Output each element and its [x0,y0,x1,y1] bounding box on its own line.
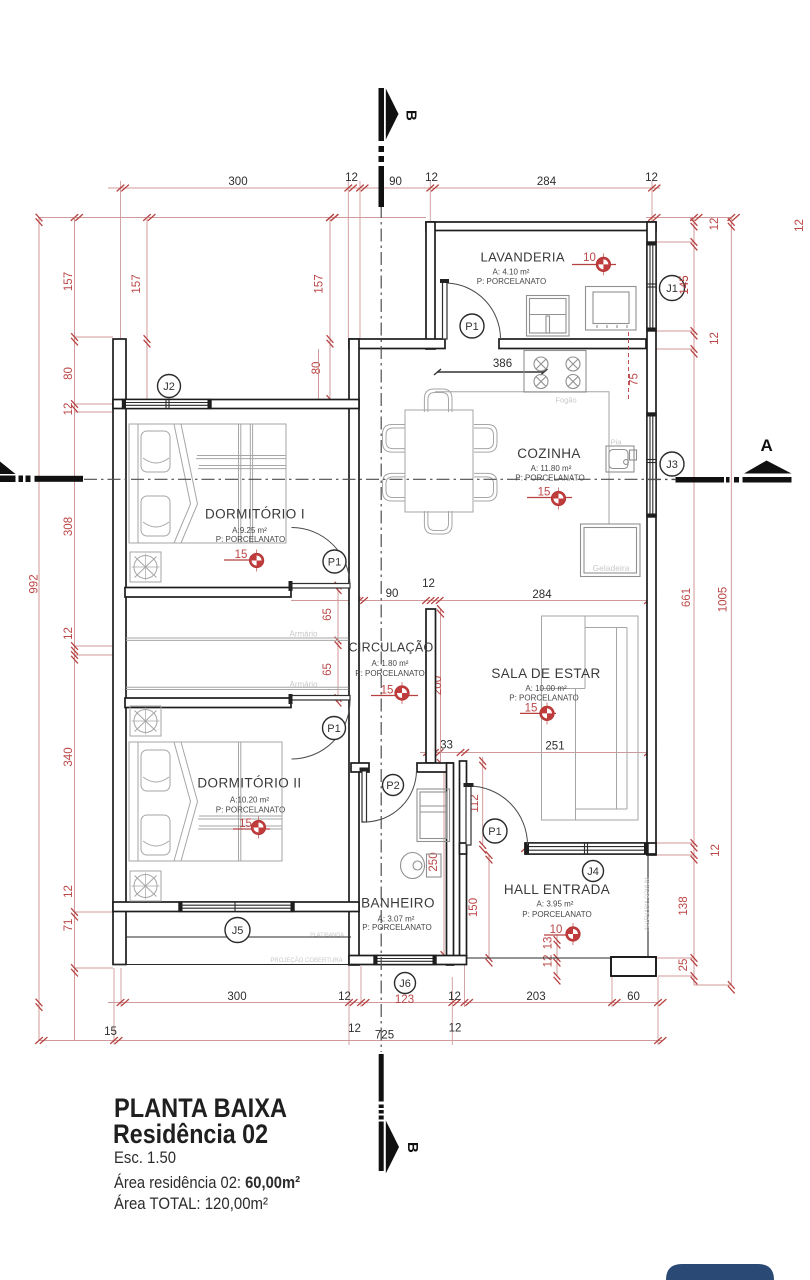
svg-text:12: 12 [543,955,555,968]
svg-text:386: 386 [493,358,512,370]
svg-text:B: B [403,110,420,121]
svg-text:150: 150 [468,898,480,917]
svg-text:A: 11.80 m²: A: 11.80 m² [531,464,572,473]
svg-text:10: 10 [550,924,563,936]
svg-text:P1: P1 [488,826,501,838]
svg-text:A: A [761,436,773,455]
svg-text:P: PORCELANATO: P: PORCELANATO [509,694,579,703]
svg-text:15: 15 [239,818,252,830]
svg-text:A:9.25 m²: A:9.25 m² [232,526,267,535]
svg-text:P: PORCELANATO: P: PORCELANATO [216,806,286,815]
svg-text:251: 251 [545,741,564,753]
svg-text:25: 25 [678,959,690,972]
svg-text:P2: P2 [386,780,399,792]
svg-text:284: 284 [537,176,557,188]
svg-text:PROJEÇÃO COBERTURA: PROJEÇÃO COBERTURA [270,957,342,964]
svg-text:992: 992 [29,574,41,593]
svg-text:LAVANDERIA: LAVANDERIA [480,250,564,265]
svg-text:300: 300 [228,176,247,188]
svg-text:308: 308 [63,517,75,536]
svg-text:Esc. 1.50: Esc. 1.50 [114,1148,176,1167]
svg-text:CIRCULAÇÃO: CIRCULAÇÃO [349,641,434,655]
svg-text:12: 12 [63,627,75,640]
svg-text:HALL ENTRADA: HALL ENTRADA [504,882,610,897]
svg-text:12: 12 [709,332,721,345]
svg-text:12: 12 [794,219,806,232]
svg-text:284: 284 [532,589,552,601]
svg-text:12: 12 [425,172,438,184]
svg-text:12: 12 [709,218,721,231]
svg-text:90: 90 [389,176,402,188]
svg-text:P: PORCELANATO: P: PORCELANATO [477,277,547,286]
svg-text:661: 661 [681,588,693,607]
svg-text:Geladeira: Geladeira [593,563,630,573]
svg-text:DORMITÓRIO II: DORMITÓRIO II [197,776,301,791]
svg-text:Área TOTAL: 120,00m²: Área TOTAL: 120,00m² [114,1194,268,1213]
svg-text:Armário: Armário [289,680,318,689]
svg-text:DORMITÓRIO I: DORMITÓRIO I [205,507,305,522]
svg-text:ALVENARIA COMUM: ALVENARIA COMUM [645,877,651,930]
svg-text:J1: J1 [666,283,678,295]
svg-text:J2: J2 [163,381,175,393]
svg-text:15: 15 [104,1026,117,1038]
svg-text:P: PORCELANATO: P: PORCELANATO [515,474,585,483]
svg-text:1005: 1005 [718,587,730,613]
svg-text:203: 203 [526,991,545,1003]
svg-text:12: 12 [63,885,75,898]
svg-text:J4: J4 [587,866,599,878]
svg-text:157: 157 [314,274,326,293]
svg-text:Residência 02: Residência 02 [113,1119,268,1149]
svg-text:12: 12 [645,172,658,184]
svg-text:60: 60 [627,991,640,1003]
svg-text:SALA DE ESTAR: SALA DE ESTAR [491,666,600,681]
svg-text:Área residência 02: 60,00m²: Área residência 02: 60,00m² [114,1173,300,1192]
svg-text:71: 71 [63,919,75,932]
svg-text:A: 3.07 m²: A: 3.07 m² [378,914,415,923]
svg-text:15: 15 [381,685,394,697]
svg-text:138: 138 [678,896,690,915]
svg-text:12: 12 [63,403,75,416]
svg-text:J3: J3 [666,459,678,471]
svg-text:15: 15 [525,703,538,715]
svg-text:BANHEIRO: BANHEIRO [361,896,435,911]
svg-text:725: 725 [375,1030,394,1042]
svg-text:P1: P1 [465,321,478,333]
svg-text:300: 300 [227,991,246,1003]
svg-text:P1: P1 [328,557,341,569]
svg-text:12: 12 [449,1023,462,1035]
svg-text:12: 12 [348,1023,361,1035]
svg-text:340: 340 [63,747,75,766]
svg-text:90: 90 [386,588,399,600]
svg-text:65: 65 [322,663,334,676]
svg-text:B: B [404,1142,421,1153]
svg-text:12: 12 [448,991,461,1003]
svg-text:12: 12 [345,172,358,184]
svg-text:13: 13 [543,937,555,950]
svg-text:P: PORCELANATO: P: PORCELANATO [362,923,432,932]
svg-text:P: PORCELANATO: P: PORCELANATO [216,535,286,544]
svg-text:P: PORCELANATO: P: PORCELANATO [355,669,425,678]
svg-text:145: 145 [679,275,691,294]
svg-text:J6: J6 [399,978,411,990]
svg-text:P1: P1 [327,723,340,735]
svg-text:65: 65 [322,608,334,621]
svg-text:A: 10.00 m²: A: 10.00 m² [525,684,567,693]
svg-text:PLATIBANDA: PLATIBANDA [310,933,344,939]
svg-text:15: 15 [538,487,551,499]
svg-text:157: 157 [63,272,75,291]
svg-text:COZINHA: COZINHA [517,446,581,461]
svg-text:80: 80 [311,362,323,375]
svg-text:123: 123 [395,994,414,1006]
svg-text:A:10.20 m²: A:10.20 m² [230,796,269,805]
svg-text:J5: J5 [232,925,244,937]
svg-text:Armário: Armário [289,630,318,639]
svg-text:A: 3.95 m²: A: 3.95 m² [537,900,574,909]
svg-text:A: 4.10 m²: A: 4.10 m² [493,268,530,277]
svg-text:80: 80 [63,367,75,380]
svg-text:10: 10 [583,252,596,264]
svg-text:157: 157 [131,274,143,293]
svg-text:12: 12 [422,578,435,590]
svg-text:75: 75 [629,373,641,386]
svg-text:12: 12 [338,991,351,1003]
svg-text:33: 33 [440,740,453,752]
svg-text:A: 1.80 m²: A: 1.80 m² [372,659,409,668]
svg-text:Pia: Pia [611,438,623,447]
svg-text:250: 250 [428,852,440,871]
svg-text:15: 15 [235,549,248,561]
svg-text:12: 12 [710,844,722,857]
svg-text:Fogão: Fogão [555,396,576,405]
svg-text:P: PORCELANATO: P: PORCELANATO [522,910,592,919]
